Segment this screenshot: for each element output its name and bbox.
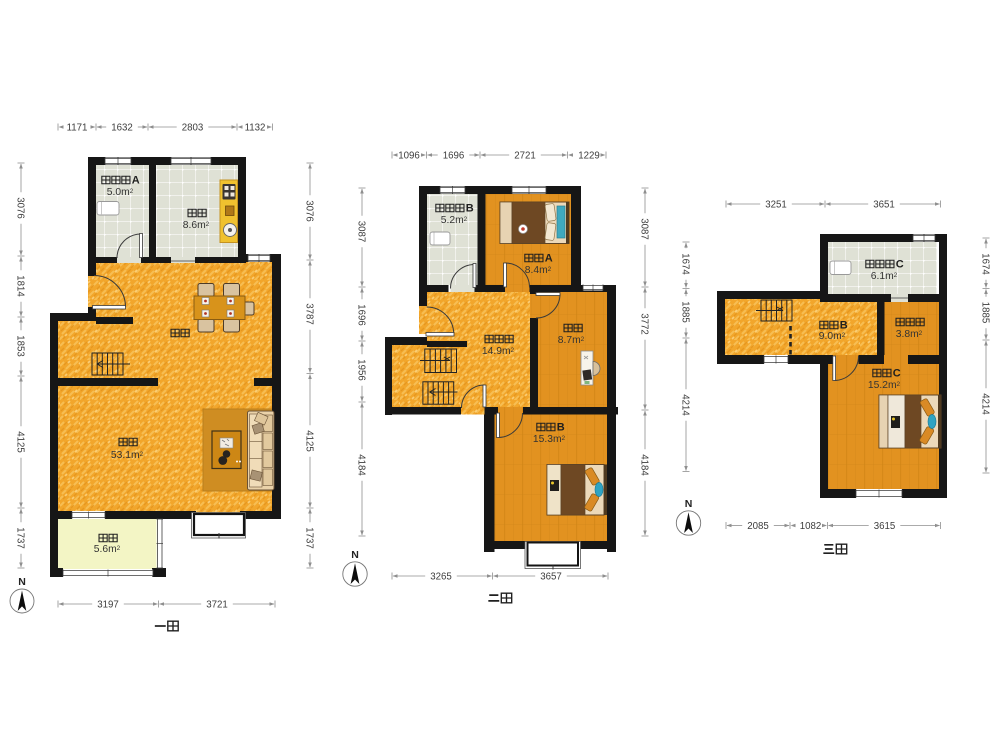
svg-text:5.6m2: 5.6m2 — [94, 544, 121, 555]
svg-text:1096: 1096 — [398, 150, 420, 161]
svg-text:5.2m2: 5.2m2 — [441, 215, 468, 226]
svg-text:3651: 3651 — [873, 199, 895, 210]
svg-text:N: N — [351, 549, 359, 561]
svg-text:C: C — [893, 368, 901, 380]
svg-text:4125: 4125 — [304, 430, 315, 452]
svg-text:N: N — [18, 576, 26, 588]
svg-text:1885: 1885 — [680, 301, 691, 323]
svg-text:4184: 4184 — [639, 454, 650, 476]
svg-text:3772: 3772 — [639, 313, 650, 335]
svg-text:1956: 1956 — [356, 359, 367, 381]
svg-text:3.8m2: 3.8m2 — [896, 329, 923, 340]
svg-text:15.3m2: 15.3m2 — [533, 434, 566, 445]
svg-text:1674: 1674 — [680, 253, 691, 275]
svg-text:1674: 1674 — [980, 253, 991, 275]
svg-text:1737: 1737 — [15, 527, 26, 549]
svg-text:2085: 2085 — [747, 521, 769, 532]
svg-text:4214: 4214 — [980, 393, 991, 415]
svg-text:8.6m2: 8.6m2 — [183, 220, 210, 231]
svg-text:3787: 3787 — [304, 303, 315, 325]
svg-text:3657: 3657 — [540, 571, 562, 582]
svg-text:1814: 1814 — [15, 275, 26, 297]
svg-text:2721: 2721 — [514, 150, 536, 161]
svg-text:8.7m2: 8.7m2 — [558, 335, 585, 346]
svg-text:3251: 3251 — [765, 199, 787, 210]
svg-text:3615: 3615 — [874, 521, 896, 532]
svg-text:3087: 3087 — [639, 218, 650, 240]
svg-text:3076: 3076 — [304, 200, 315, 222]
svg-text:8.4m2: 8.4m2 — [525, 265, 552, 276]
svg-text:2803: 2803 — [182, 122, 204, 133]
svg-text:53.1m2: 53.1m2 — [111, 450, 144, 461]
svg-text:B: B — [466, 203, 474, 215]
svg-text:3721: 3721 — [206, 599, 228, 610]
svg-text:1696: 1696 — [443, 150, 465, 161]
svg-text:3265: 3265 — [430, 571, 452, 582]
svg-text:A: A — [132, 175, 140, 187]
svg-text:1737: 1737 — [304, 527, 315, 549]
svg-text:3197: 3197 — [97, 599, 119, 610]
svg-text:N: N — [685, 498, 693, 510]
svg-text:1229: 1229 — [578, 150, 600, 161]
svg-text:1171: 1171 — [67, 122, 88, 133]
svg-text:A: A — [545, 253, 553, 265]
svg-text:4214: 4214 — [680, 394, 691, 416]
svg-text:6.1m2: 6.1m2 — [871, 271, 898, 282]
svg-text:5.0m2: 5.0m2 — [107, 187, 134, 198]
svg-text:4184: 4184 — [356, 454, 367, 476]
svg-text:B: B — [557, 422, 565, 434]
svg-text:3076: 3076 — [15, 197, 26, 219]
svg-text:1853: 1853 — [15, 335, 26, 357]
svg-text:B: B — [840, 320, 848, 332]
svg-text:1082: 1082 — [800, 521, 822, 532]
svg-text:15.2m2: 15.2m2 — [868, 380, 901, 391]
svg-text:1696: 1696 — [356, 304, 367, 326]
svg-text:1132: 1132 — [245, 122, 266, 133]
svg-text:4125: 4125 — [15, 431, 26, 453]
svg-text:3087: 3087 — [356, 221, 367, 243]
svg-text:C: C — [896, 259, 904, 271]
svg-text:1885: 1885 — [980, 302, 991, 324]
svg-text:14.9m2: 14.9m2 — [482, 346, 515, 357]
svg-text:1632: 1632 — [111, 122, 133, 133]
svg-text:9.0m2: 9.0m2 — [819, 331, 846, 342]
